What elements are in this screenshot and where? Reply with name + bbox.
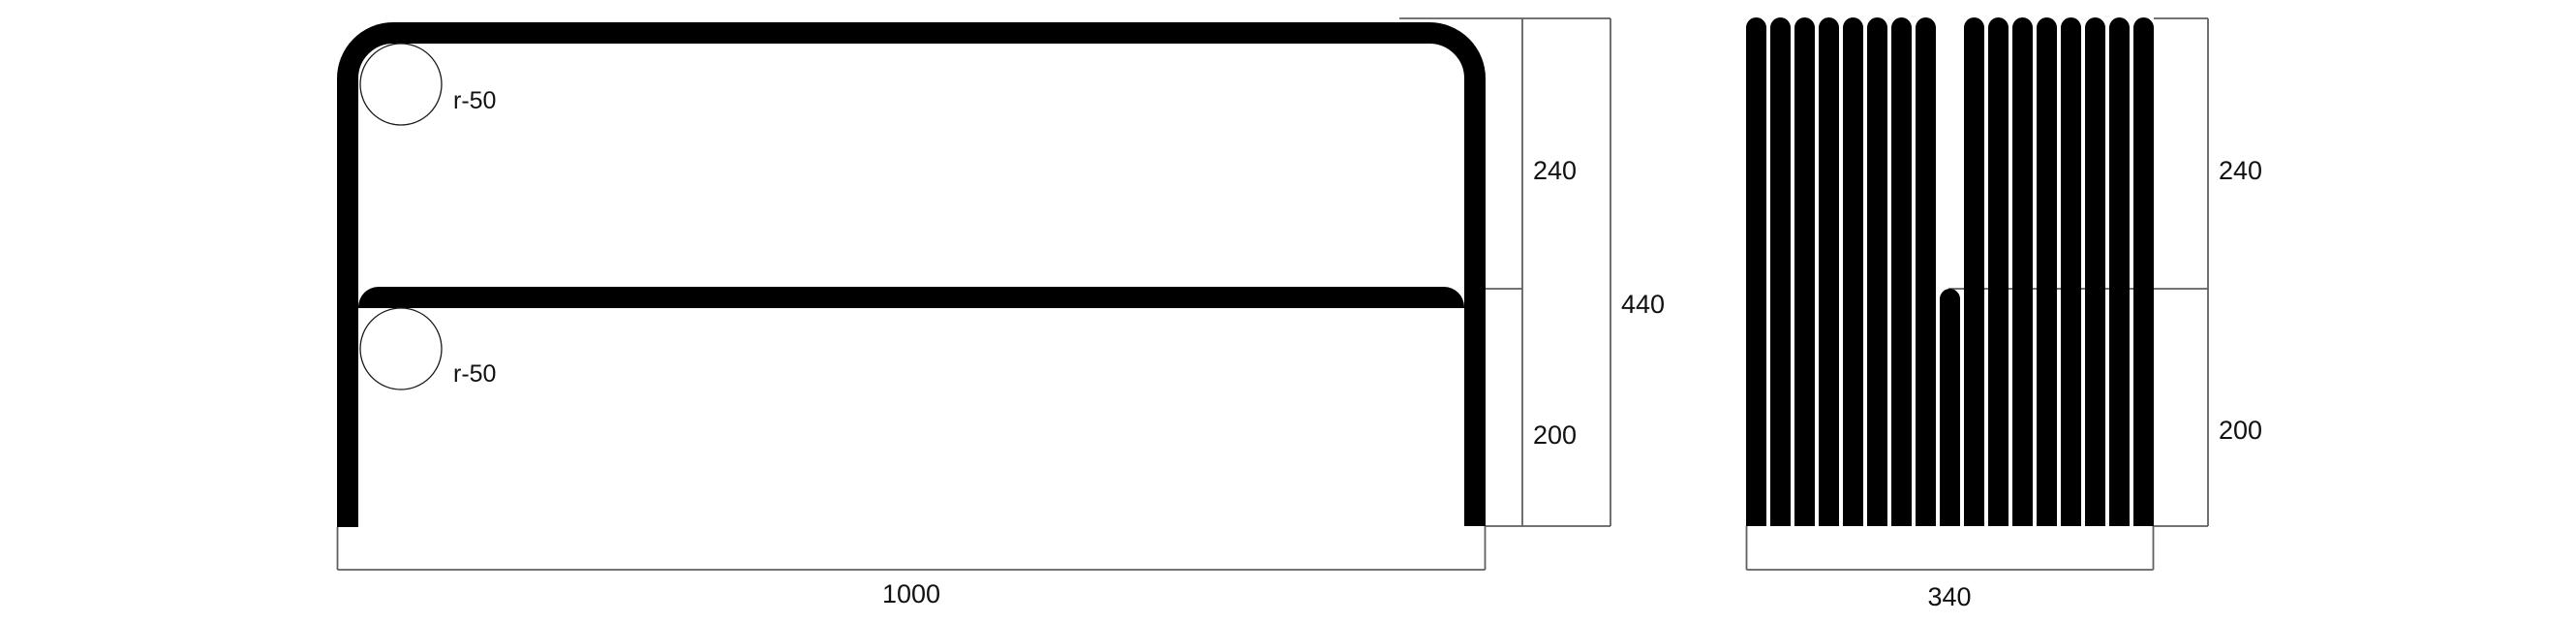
dim-label-side-bottom-section: 200 bbox=[2219, 416, 2262, 445]
picket-bar bbox=[1964, 17, 1984, 526]
radius-label-middle: r-50 bbox=[453, 360, 496, 388]
dim-label-front-total-height: 440 bbox=[1621, 290, 1665, 319]
picket-bar bbox=[2012, 17, 2033, 526]
railing-drawing-svg: r-50 r-50 240 200 440 1000 240 200 340 bbox=[0, 0, 2576, 623]
picket-bar bbox=[1746, 17, 1766, 526]
front-view: r-50 r-50 240 200 440 1000 bbox=[338, 18, 1666, 608]
picket-bar bbox=[2133, 17, 2154, 526]
picket-bar bbox=[2037, 17, 2057, 526]
side-view: 240 200 340 bbox=[1746, 17, 2262, 611]
picket-bar bbox=[2061, 17, 2081, 526]
picket-bar bbox=[1867, 17, 1887, 526]
dim-label-side-overall-width: 340 bbox=[1927, 582, 1971, 611]
picket-bar bbox=[1819, 17, 1839, 526]
radius-callout-circle-middle bbox=[360, 308, 442, 389]
middle-rail bbox=[358, 287, 1464, 308]
picket-bar bbox=[1891, 17, 1912, 526]
picket-bar bbox=[1794, 17, 1815, 526]
picket-bar bbox=[1988, 17, 2009, 526]
picket-bar bbox=[1770, 17, 1791, 526]
picket-bar bbox=[2109, 17, 2130, 526]
dim-label-side-top-section: 240 bbox=[2219, 156, 2262, 185]
picket-bar bbox=[1916, 17, 1936, 526]
radius-label-top: r-50 bbox=[453, 87, 496, 114]
picket-bar-short bbox=[1940, 289, 1960, 526]
dim-label-front-top-section: 240 bbox=[1533, 156, 1577, 185]
technical-drawing-canvas: r-50 r-50 240 200 440 1000 240 200 340 bbox=[0, 0, 2576, 623]
picket-bar bbox=[1843, 17, 1863, 526]
radius-callout-circle-top bbox=[360, 44, 442, 125]
picket-group bbox=[1746, 17, 2154, 526]
frame-tube-outline bbox=[348, 33, 1475, 527]
dim-label-front-bottom-section: 200 bbox=[1533, 421, 1577, 450]
picket-bar bbox=[2085, 17, 2105, 526]
dim-label-front-overall-width: 1000 bbox=[882, 579, 940, 608]
